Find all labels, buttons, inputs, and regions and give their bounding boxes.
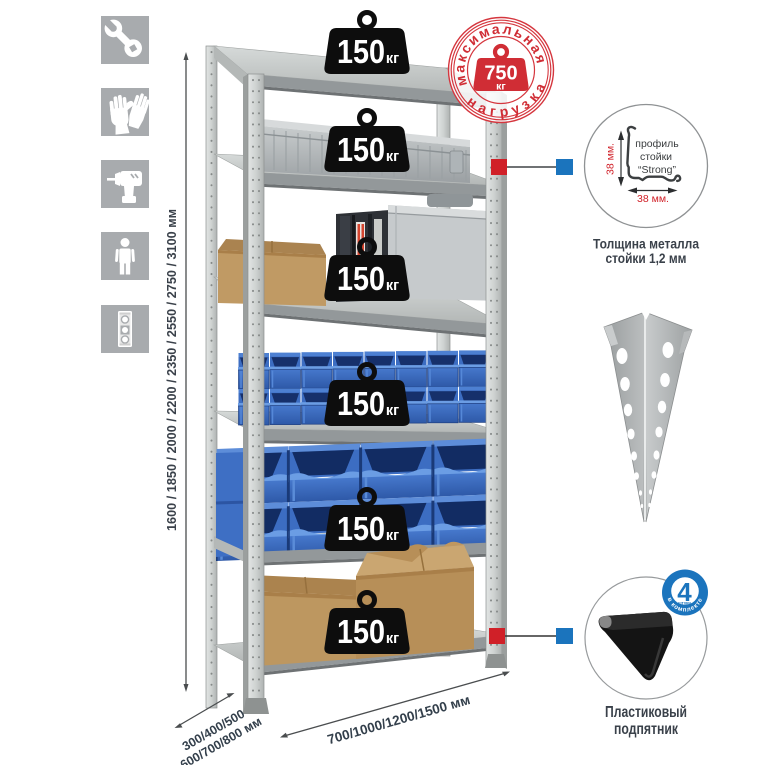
svg-text:стойки: стойки xyxy=(640,151,672,163)
svg-text:1600 / 1850 / 2000 / 2200 / 23: 1600 / 1850 / 2000 / 2200 / 2350 / 2550 … xyxy=(165,209,179,531)
svg-text:“Strong”: “Strong” xyxy=(638,164,676,176)
svg-text:Толщина металла: Толщина металла xyxy=(593,237,699,252)
svg-text:38 мм.: 38 мм. xyxy=(637,193,669,205)
svg-text:Пластиковый: Пластиковый xyxy=(605,704,687,721)
svg-text:профиль: профиль xyxy=(635,138,679,150)
svg-text:стойки 1,2 мм: стойки 1,2 мм xyxy=(606,251,687,266)
svg-text:38 мм.: 38 мм. xyxy=(605,143,617,175)
svg-text:штуки: штуки xyxy=(678,601,691,606)
svg-text:кг: кг xyxy=(496,81,506,93)
svg-text:подпятник: подпятник xyxy=(614,721,678,738)
svg-text:700/1000/1200/1500 мм: 700/1000/1200/1500 мм xyxy=(326,692,472,747)
